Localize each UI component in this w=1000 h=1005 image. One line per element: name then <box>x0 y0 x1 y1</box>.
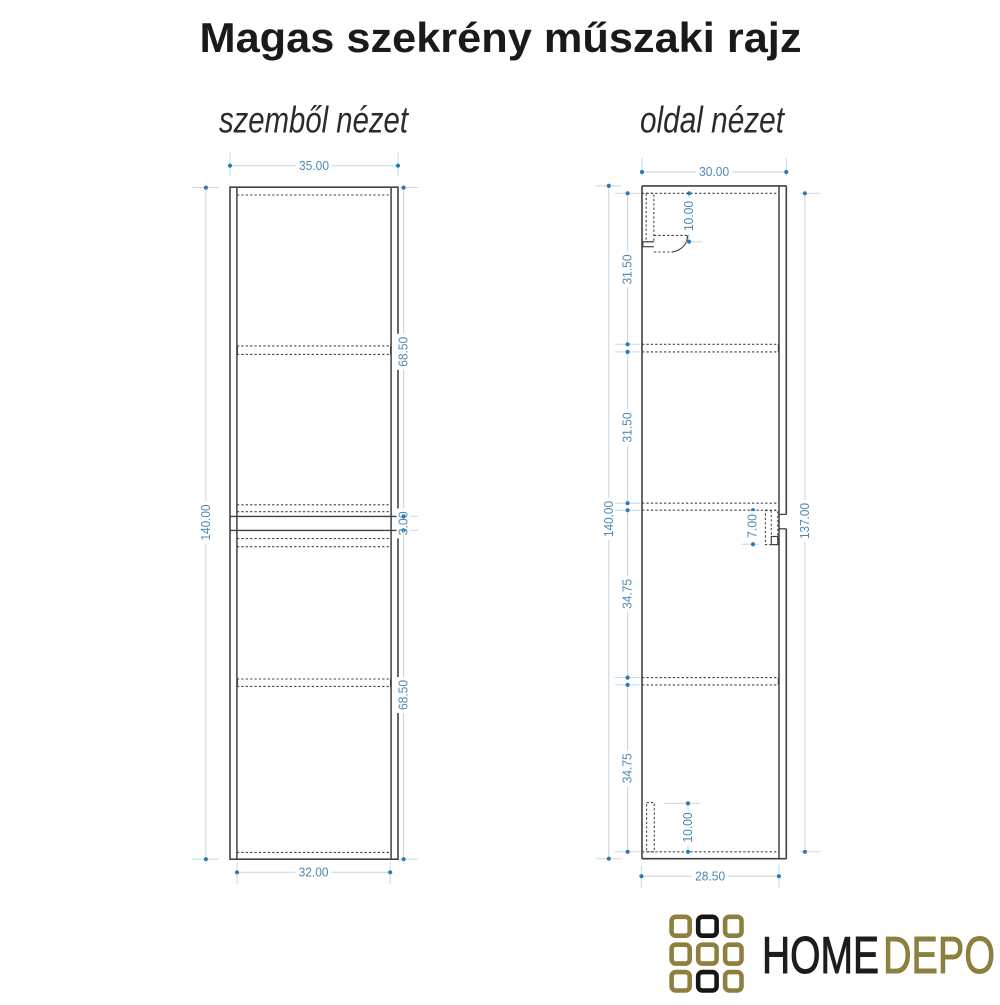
svg-text:10.00: 10.00 <box>680 813 695 843</box>
svg-text:34.75: 34.75 <box>620 579 635 609</box>
svg-text:35.00: 35.00 <box>299 158 329 173</box>
svg-text:7.00: 7.00 <box>744 514 759 538</box>
svg-text:32.00: 32.00 <box>299 864 329 879</box>
svg-text:HOME: HOME <box>762 927 879 985</box>
svg-text:DEPO: DEPO <box>883 927 995 985</box>
svg-text:Magas szekrény műszaki rajz: Magas szekrény műszaki rajz <box>200 14 802 61</box>
svg-text:30.00: 30.00 <box>699 164 729 179</box>
svg-text:140.00: 140.00 <box>601 501 616 537</box>
svg-text:31.50: 31.50 <box>620 255 635 285</box>
svg-text:140.00: 140.00 <box>198 505 213 541</box>
svg-text:oldal nézet: oldal nézet <box>640 100 785 141</box>
svg-text:28.50: 28.50 <box>695 868 725 883</box>
svg-text:68.50: 68.50 <box>396 680 411 710</box>
svg-text:68.50: 68.50 <box>396 337 411 367</box>
svg-text:10.00: 10.00 <box>681 201 696 231</box>
svg-text:137.00: 137.00 <box>797 503 812 539</box>
svg-text:34.75: 34.75 <box>620 753 635 783</box>
svg-text:szemből nézet: szemből nézet <box>219 100 409 141</box>
svg-text:31.50: 31.50 <box>620 413 635 443</box>
